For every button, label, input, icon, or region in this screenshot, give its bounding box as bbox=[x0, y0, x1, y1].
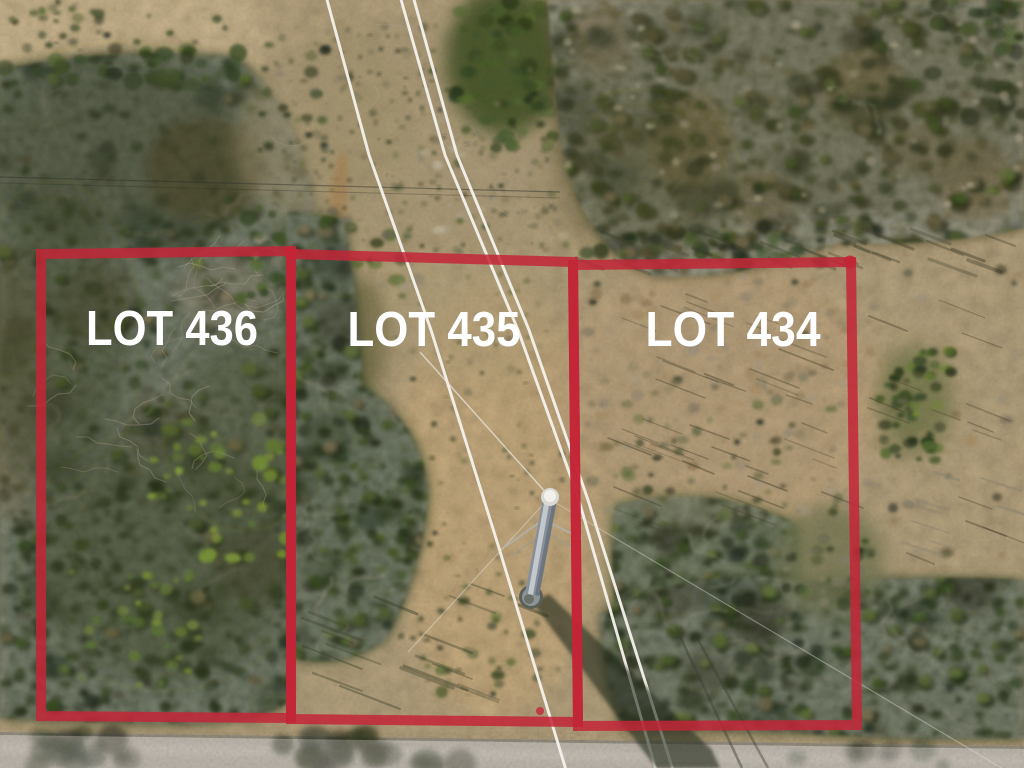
svg-text:LOT 434: LOT 434 bbox=[646, 303, 821, 357]
svg-text:LOT 435: LOT 435 bbox=[348, 303, 521, 357]
svg-text:LOT 436: LOT 436 bbox=[86, 302, 258, 356]
